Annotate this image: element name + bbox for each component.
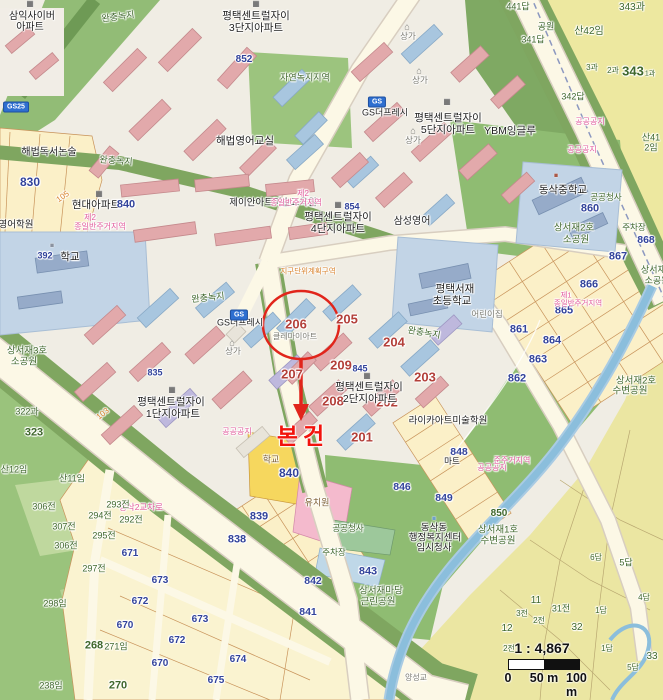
map-label: 자연녹지지역 bbox=[280, 74, 330, 83]
map-label: 830 bbox=[20, 176, 40, 188]
map-label: 838 bbox=[228, 535, 246, 546]
map-label: 297전 bbox=[82, 565, 105, 574]
map-label: 영어학원 bbox=[0, 220, 33, 230]
map-labels-layer: 삼익사이버아파트완충녹지평택센트럴자이3단지아파트852자연녹지지역441답공원… bbox=[0, 0, 663, 700]
map-label: 295전 bbox=[92, 532, 115, 541]
map-label: 863 bbox=[529, 355, 547, 366]
map-label: 평택센트럴자이 bbox=[222, 11, 290, 22]
map-label: 674 bbox=[230, 655, 247, 665]
map-label: 441답 bbox=[506, 3, 529, 12]
map-label: 105 bbox=[55, 190, 71, 204]
map-label: 유치원 bbox=[305, 499, 330, 508]
map-label: 835 bbox=[147, 369, 162, 378]
map-label: 12 bbox=[501, 624, 512, 634]
school-icon: ■ bbox=[554, 173, 558, 180]
map-label: 제2 bbox=[297, 190, 309, 198]
map-label: 670 bbox=[152, 659, 169, 669]
gs-badge: GS bbox=[368, 97, 386, 108]
scale-tick-0: 0 bbox=[505, 671, 512, 685]
map-label: 843 bbox=[359, 567, 377, 578]
map-label: 1단지아파트 bbox=[146, 409, 200, 420]
apartment-icon: ▦ bbox=[95, 190, 103, 198]
map-label: 852 bbox=[236, 55, 253, 65]
map-label: 해법독서논술 bbox=[21, 148, 76, 158]
map-label: 5단지아파트 bbox=[421, 125, 475, 136]
map-label: 2임 bbox=[644, 144, 657, 153]
map-label: 206 bbox=[285, 318, 307, 331]
map-label: 840 bbox=[279, 467, 299, 479]
map-label: 완충녹지 bbox=[101, 10, 135, 24]
map-label: 6답 bbox=[590, 554, 602, 562]
map-label: 5답 bbox=[619, 559, 632, 568]
map-label: 주차장 bbox=[322, 548, 345, 557]
apartment-icon: ▦ bbox=[252, 0, 260, 8]
map-label: 672 bbox=[132, 597, 149, 607]
map-label: 소공원 bbox=[563, 235, 589, 245]
map-label: 클레마이아트 bbox=[273, 333, 317, 341]
map-label: 11 bbox=[531, 596, 541, 606]
map-label: 842 bbox=[304, 576, 322, 587]
map-label: 상가 bbox=[412, 76, 428, 85]
map-label: 103 bbox=[95, 407, 110, 422]
map-label: 해법영어교실 bbox=[216, 136, 274, 147]
map-label: 3단지아파트 bbox=[229, 23, 283, 34]
map-label: 268 bbox=[85, 641, 103, 652]
map-label: 32 bbox=[571, 623, 582, 633]
map-label: 841 bbox=[299, 607, 317, 618]
map-label: 208 bbox=[322, 395, 344, 408]
map-label: 소공원 bbox=[11, 357, 37, 367]
map-label: 평택센트럴자이 bbox=[137, 397, 205, 408]
map-label: 산11임 bbox=[59, 475, 85, 484]
scale-ticks: 0 50 m 100 m bbox=[498, 670, 608, 684]
map-label: 201 bbox=[351, 431, 373, 444]
map-label: 제2 bbox=[84, 214, 96, 222]
map-label: 670 bbox=[117, 621, 134, 631]
map-label: 학교 bbox=[263, 456, 280, 465]
map-label: 산41 bbox=[642, 134, 660, 143]
map-label: 671 bbox=[122, 549, 139, 559]
map-label: GS더프레시 bbox=[362, 109, 408, 118]
apartment-icon: ▦ bbox=[334, 201, 342, 209]
map-label: 864 bbox=[543, 336, 561, 347]
map-label: 임시청사 bbox=[417, 543, 452, 553]
map-label: 평택센트럴자이 bbox=[414, 113, 482, 124]
map-label: 672 bbox=[169, 636, 186, 646]
shop-icon: ⌂ bbox=[229, 339, 234, 348]
map-label: 마트 bbox=[444, 457, 460, 466]
map-label: 306전 bbox=[32, 503, 55, 512]
map-label: 주차장 bbox=[622, 223, 645, 232]
map-label: 867 bbox=[609, 252, 627, 263]
map-label: 완충녹지 bbox=[407, 326, 441, 341]
map-label: 공공공지 bbox=[575, 118, 604, 126]
map-label: 산42임 bbox=[574, 27, 604, 37]
map-label: 675 bbox=[208, 676, 225, 686]
map-label: 323 bbox=[25, 428, 43, 439]
map-label: 306전 bbox=[54, 542, 77, 551]
map-label: 상가 bbox=[405, 136, 421, 145]
map-label: 866 bbox=[580, 280, 598, 291]
map-label: 어린이집 bbox=[471, 310, 502, 319]
map-label: 203 bbox=[414, 371, 436, 384]
map-label: 862 bbox=[508, 374, 526, 385]
map-label: 공원 bbox=[538, 23, 555, 32]
map-label: 839 bbox=[250, 512, 268, 523]
map-label: 298임 bbox=[43, 600, 66, 609]
map-label: 33 bbox=[646, 652, 657, 662]
gs-badge: GS bbox=[230, 310, 248, 321]
map-label: 삼익사이버 bbox=[9, 12, 55, 22]
map-label: 840 bbox=[117, 200, 135, 211]
map-label: 종일반주거지역 bbox=[554, 299, 602, 307]
map-label: 초등학교 bbox=[433, 296, 472, 307]
map-label: 상서재마당 bbox=[359, 586, 403, 596]
map-label: 지구단위계획구역 bbox=[280, 267, 335, 275]
map-label: 산12임 bbox=[1, 466, 28, 475]
map-label: 860 bbox=[581, 204, 599, 215]
scale-bar bbox=[508, 659, 580, 670]
map-label: 공공공지 bbox=[222, 428, 251, 436]
map-label: 2전 bbox=[533, 617, 545, 625]
map-label: 상서재3호 bbox=[7, 346, 47, 356]
map-label: 294전 bbox=[88, 512, 111, 521]
map-label: 상서재1호 bbox=[478, 525, 518, 535]
map-label: 수변공원 bbox=[481, 536, 516, 546]
scale-tick-100: 100 m bbox=[566, 671, 594, 699]
map-label: 4답 bbox=[638, 594, 650, 602]
apartment-icon: ▦ bbox=[363, 372, 371, 380]
map-label: 392 bbox=[37, 252, 52, 261]
map-label: 673 bbox=[192, 615, 209, 625]
map-label: 공공공지 bbox=[477, 464, 506, 472]
map-label: 수변공원 bbox=[613, 386, 648, 396]
map-label: 5답 bbox=[627, 664, 639, 672]
map-label: 상가 bbox=[225, 347, 241, 356]
map-label: 소공원 bbox=[645, 277, 663, 286]
map-label: 850 bbox=[491, 509, 508, 519]
map-label: 207 bbox=[281, 368, 303, 381]
map-label: 3과 bbox=[586, 64, 598, 72]
shop-icon: ⌂ bbox=[404, 23, 409, 32]
map-label: 완충녹지 bbox=[99, 155, 133, 166]
map-label: 공공공지 bbox=[567, 146, 596, 154]
map-label: 평택센트럴자이 bbox=[335, 382, 403, 393]
apartment-icon: ▦ bbox=[26, 0, 34, 8]
map-label: 상가 bbox=[400, 32, 416, 41]
scale-widget: 1 : 4,867 0 50 m 100 m bbox=[498, 640, 608, 684]
map-label: 1과 bbox=[645, 71, 655, 78]
map-label: 종일반주거지역 bbox=[74, 223, 126, 231]
school-icon: ■ bbox=[50, 243, 54, 250]
map-label: 343 bbox=[622, 65, 644, 78]
map-label: 상서재2호 bbox=[554, 223, 594, 233]
map-label: 아파트 bbox=[16, 23, 44, 33]
map-label: 209 bbox=[330, 359, 352, 372]
map-label: 846 bbox=[393, 482, 411, 493]
map-label: 205 bbox=[336, 313, 358, 326]
map-label: 종일반주거지역 bbox=[270, 199, 322, 207]
map-label: YBM잉글루 bbox=[484, 126, 536, 137]
map-label: 4단지아파트 bbox=[311, 224, 365, 235]
map-label: 292전 bbox=[119, 516, 142, 525]
map-label: 삼성영어 bbox=[394, 217, 431, 227]
map-label: 868 bbox=[637, 235, 655, 246]
map-label: 673 bbox=[152, 576, 169, 586]
map-label: 공공청사 bbox=[332, 524, 363, 533]
map-label: 270 bbox=[109, 681, 127, 692]
apartment-icon: ▦ bbox=[443, 98, 451, 106]
map-label: 준주거지역 bbox=[494, 457, 531, 465]
map-label: 공공청사 bbox=[590, 193, 621, 202]
shop-icon: ⌂ bbox=[416, 67, 421, 76]
map-label: 238임 bbox=[39, 682, 62, 691]
map-label: 양성교 bbox=[405, 674, 427, 682]
map-label: 1답 bbox=[595, 607, 607, 615]
map-label: 341답 bbox=[521, 36, 544, 45]
map-label: 상서재1호 bbox=[641, 266, 663, 275]
map-label: 평택센트럴자이 bbox=[304, 212, 372, 223]
map-label: 322과 bbox=[15, 408, 38, 417]
map-label: 근린공원 bbox=[361, 597, 396, 607]
map-label: 293전 bbox=[106, 501, 129, 510]
scale-tick-50: 50 m bbox=[530, 671, 559, 685]
apartment-icon: ▦ bbox=[168, 386, 176, 394]
map-label: 307전 bbox=[52, 523, 75, 532]
map-label: 동삭중학교 bbox=[539, 185, 587, 196]
map-label: 848 bbox=[450, 447, 468, 458]
scale-ratio: 1 : 4,867 bbox=[498, 640, 586, 656]
map-label: 849 bbox=[435, 493, 453, 504]
map-label: 라이카아트미술학원 bbox=[409, 416, 488, 426]
map-label: 학교 bbox=[60, 252, 79, 263]
map-label: 2단지아파트 bbox=[343, 394, 397, 405]
map-label: 342답 bbox=[561, 93, 584, 102]
shop-icon: ⌂ bbox=[410, 127, 415, 136]
map-label: 완충녹지 bbox=[191, 292, 225, 304]
subject-property-label: 본건 bbox=[277, 417, 329, 451]
map-label: 204 bbox=[383, 336, 405, 349]
map-label: 3전 bbox=[516, 610, 528, 618]
map-label: 평택서재 bbox=[436, 284, 475, 295]
map-label: 271임 bbox=[104, 643, 127, 652]
map-label: 2과 bbox=[607, 67, 619, 75]
map-label: 현대아파트 bbox=[72, 200, 120, 211]
map-canvas[interactable]: 삼익사이버아파트완충녹지평택센트럴자이3단지아파트852자연녹지지역441답공원… bbox=[0, 0, 663, 700]
public-office-icon: ■ bbox=[432, 516, 436, 523]
map-label: 31전 bbox=[552, 605, 570, 614]
gs25-badge: GS25 bbox=[3, 102, 29, 113]
map-label: 861 bbox=[510, 325, 528, 336]
map-label: 343과 bbox=[619, 3, 645, 13]
